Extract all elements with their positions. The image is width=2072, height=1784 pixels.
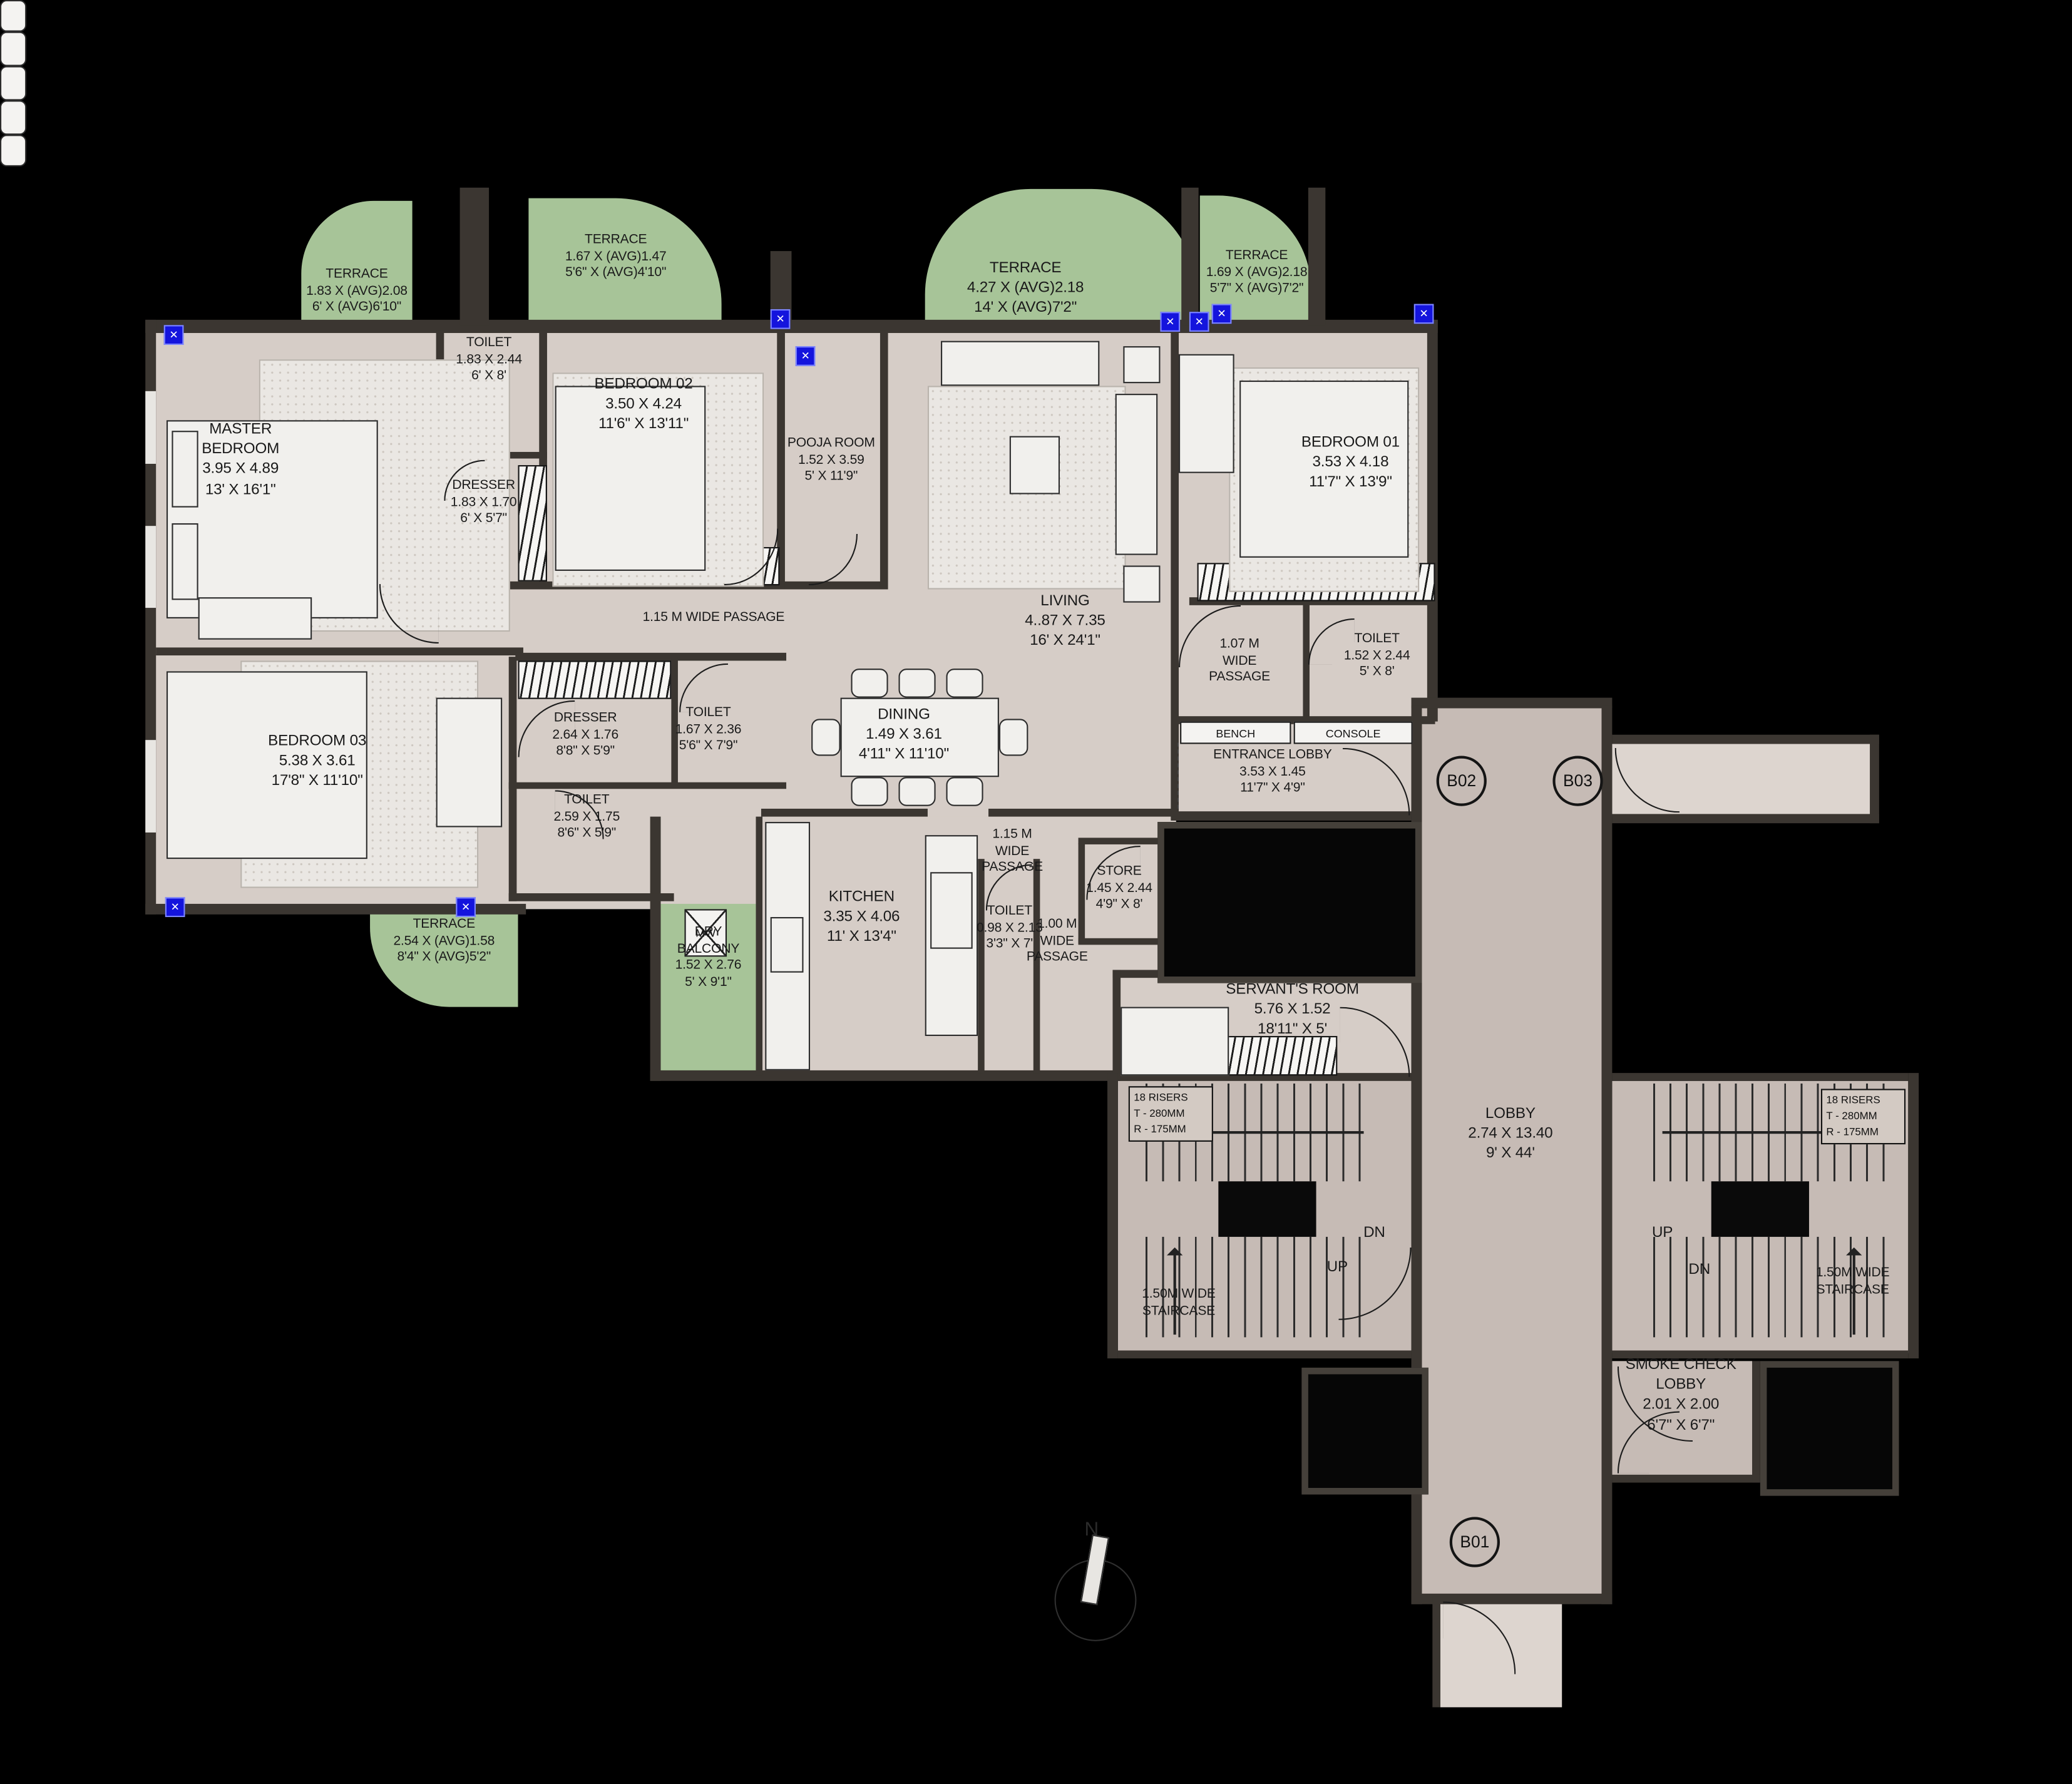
window-gap	[145, 740, 156, 833]
wardrobe-dresser2	[518, 661, 672, 699]
dining-chair	[946, 777, 983, 806]
wall	[509, 782, 786, 789]
marker-b02: B02	[1437, 756, 1487, 806]
label-store: STORE 1.45 X 2.44 4'9" X 8'	[1086, 864, 1152, 914]
wall	[978, 859, 985, 1073]
duct-shaft	[1760, 1361, 1899, 1495]
label-toilet-bedroom01: TOILET 1.52 X 2.44 5' X 8'	[1344, 632, 1410, 681]
wall	[1612, 814, 1879, 823]
desk-bedroom03	[436, 698, 503, 828]
window-marker-icon: ✕	[796, 346, 816, 366]
kitchen-hob	[930, 872, 973, 948]
wall-stub	[1181, 188, 1198, 326]
label-dresser-2: DRESSER 2.64 X 1.76 8'8" X 5'9"	[552, 711, 618, 761]
wc-fixture	[0, 66, 26, 101]
wall	[756, 817, 762, 1076]
dining-chair	[999, 719, 1028, 756]
pillow	[172, 431, 198, 507]
coffee-table	[1010, 436, 1060, 495]
window-marker-icon: ✕	[165, 897, 185, 917]
stair-landing	[1218, 1181, 1316, 1237]
wall	[1908, 1073, 1919, 1358]
wall	[1112, 970, 1121, 1080]
wall	[1612, 1073, 1908, 1081]
wall	[880, 331, 888, 590]
dining-chair	[898, 777, 935, 806]
wall	[761, 809, 928, 817]
label-dn-left: DN	[1363, 1224, 1385, 1244]
wardrobe-servant	[1226, 1036, 1337, 1075]
label-toilet-center: TOILET 1.67 X 2.36 5'6" X 7'9"	[675, 705, 742, 755]
label-dry-balcony: DRY BALCONY 1.52 X 2.76 5' X 9'1"	[675, 925, 742, 992]
wall	[509, 657, 517, 901]
label-lobby: LOBBY 2.74 X 13.40 9' X 44'	[1468, 1105, 1552, 1165]
label-up-left: UP	[1327, 1258, 1348, 1278]
wall	[1612, 1475, 1760, 1483]
label-toilet-bedroom03: TOILET 2.59 X 1.75 8'6" X 5'9"	[553, 793, 620, 843]
floor-plan-canvas: BENCH CONSOLE MW ✕ ✕ ✕ ✕ ✕ ✕ ✕ ✕ ✕ MASTE…	[0, 0, 2072, 1784]
wall	[509, 893, 674, 901]
label-staircase-left: 1.50M WIDE STAIRCASE	[1142, 1287, 1216, 1320]
marker-b01: B01	[1450, 1517, 1500, 1567]
side-table	[1123, 566, 1160, 603]
wall	[988, 809, 1176, 817]
window-marker-icon: ✕	[1189, 312, 1209, 332]
label-terrace-master: TERRACE 1.83 X (AVG)2.08 6' X (AVG)6'10"	[306, 267, 408, 316]
duct-shaft	[1157, 822, 1422, 983]
label-dresser-master: DRESSER 1.83 X 1.70 6' X 5'7"	[451, 478, 517, 528]
wall	[1107, 1073, 1118, 1358]
label-up-right: UP	[1652, 1224, 1673, 1244]
wall	[1079, 838, 1161, 844]
wall	[1870, 735, 1879, 823]
label-bedroom-02: BEDROOM 02 3.50 X 4.24 11'6" X 13'11"	[595, 376, 693, 436]
window-gap	[145, 526, 156, 608]
sofa-master	[198, 597, 312, 640]
label-toilet-master: TOILET 1.83 X 2.44 6' X 8'	[456, 336, 522, 385]
wall	[650, 1070, 1179, 1081]
label-passage-100: 1.00 M WIDE PASSAGE	[1027, 917, 1088, 966]
side-table	[1123, 346, 1160, 383]
label-passage-main: 1.15 M WIDE PASSAGE	[643, 610, 785, 627]
wall	[1612, 735, 1879, 744]
label-bedroom-01: BEDROOM 01 3.53 X 4.18 11'7" X 13'9"	[1301, 433, 1400, 493]
arrow-head-up	[1846, 1239, 1862, 1255]
wall	[1602, 705, 1613, 1604]
label-passage-107: 1.07 M WIDE PASSAGE	[1209, 637, 1270, 687]
wall-stub	[460, 188, 489, 326]
stair-landing	[1711, 1181, 1809, 1237]
wc-fixture	[0, 0, 26, 32]
entrance-dashed-line	[1177, 742, 1179, 809]
wc-fixture	[0, 100, 26, 135]
window-gap	[145, 391, 156, 464]
label-entrance-lobby: ENTRANCE LOBBY 3.53 X 1.45 11'7" X 4'9"	[1213, 748, 1331, 797]
floor-plan-page: { "colors":{"floor":"#d6cdc7","lobby_flo…	[0, 0, 2072, 1784]
dining-chair	[851, 669, 888, 697]
label-servants-room: SERVANT'S ROOM 5.76 X 1.52 18'11" X 5'	[1226, 980, 1359, 1040]
bench-label: BENCH	[1216, 726, 1255, 739]
window-marker-icon: ✕	[771, 309, 791, 329]
label-smoke-check-lobby: SMOKE CHECK LOBBY 2.01 X 2.00 6'7" X 6'7…	[1626, 1356, 1736, 1436]
wall	[1427, 320, 1438, 722]
sofa-living-top	[941, 341, 1099, 386]
arrow-head-up	[1167, 1239, 1182, 1255]
label-dn-right: DN	[1688, 1261, 1710, 1281]
wall	[1412, 1594, 1613, 1604]
duct-shaft	[1301, 1368, 1428, 1495]
pillow	[172, 523, 198, 600]
wardrobe-dresser1	[518, 465, 547, 582]
desk-bedroom01	[1179, 354, 1234, 473]
label-staircase-right: 1.50M WIDE STAIRCASE	[1816, 1266, 1890, 1299]
wall	[650, 817, 661, 1081]
label-pooja-room: POOJA ROOM 1.52 X 3.59 5' X 11'9"	[787, 436, 875, 486]
wall	[1079, 938, 1161, 945]
console-label: CONSOLE	[1326, 726, 1381, 739]
wall	[1432, 1596, 1440, 1707]
console-box: CONSOLE	[1294, 722, 1413, 744]
dining-chair	[946, 669, 983, 697]
window-marker-icon: ✕	[164, 325, 184, 345]
window-marker-icon: ✕	[456, 897, 476, 917]
risers-info-right: 18 RISERS T - 280MM R - 175MM	[1821, 1089, 1905, 1144]
wall	[1412, 698, 1613, 709]
wall	[156, 647, 523, 655]
kitchen-sink	[771, 917, 804, 973]
window-marker-icon: ✕	[1414, 304, 1434, 324]
label-terrace-bedroom01: TERRACE 1.69 X (AVG)2.18 5'7" X (AVG)7'2…	[1206, 249, 1308, 298]
label-terrace-bedroom02: TERRACE 1.67 X (AVG)1.47 5'6" X (AVG)4'1…	[565, 233, 667, 282]
dining-chair	[898, 669, 935, 697]
label-terrace-living: TERRACE 4.27 X (AVG)2.18 14' X (AVG)7'2"	[967, 259, 1084, 319]
servant-bed	[1121, 1007, 1229, 1076]
label-dining: DINING 1.49 X 3.61 4'11" X 11'10"	[859, 705, 949, 766]
wall	[1752, 1361, 1760, 1482]
window-marker-icon: ✕	[1212, 304, 1232, 324]
label-living: LIVING 4..87 X 7.35 16' X 24'1"	[1025, 592, 1105, 652]
label-bedroom-03: BEDROOM 03 5.38 X 3.61 17'8" X 11'10"	[268, 732, 366, 792]
wall	[1118, 1350, 1412, 1358]
risers-info-left: 18 RISERS T - 280MM R - 175MM	[1129, 1086, 1213, 1142]
marker-b03: B03	[1552, 756, 1603, 806]
dining-chair	[851, 777, 888, 806]
label-passage-115-kitchen: 1.15 M WIDE PASSAGE	[982, 827, 1043, 876]
sofa-living-right	[1115, 394, 1158, 555]
label-master-bedroom: MASTER BEDROOM 3.95 X 4.89 13' X 16'1"	[202, 420, 279, 500]
window-marker-icon: ✕	[1160, 312, 1180, 332]
wc-fixture	[0, 135, 26, 167]
label-terrace-bedroom03: TERRACE 2.54 X (AVG)1.58 8'4" X (AVG)5'2…	[393, 917, 495, 966]
label-kitchen: KITCHEN 3.35 X 4.06 11' X 13'4"	[823, 888, 900, 948]
wall	[515, 653, 786, 661]
wall-stub	[1308, 188, 1325, 326]
dining-chair	[811, 719, 840, 756]
wc-fixture	[0, 32, 26, 66]
bench-box: BENCH	[1180, 722, 1291, 744]
